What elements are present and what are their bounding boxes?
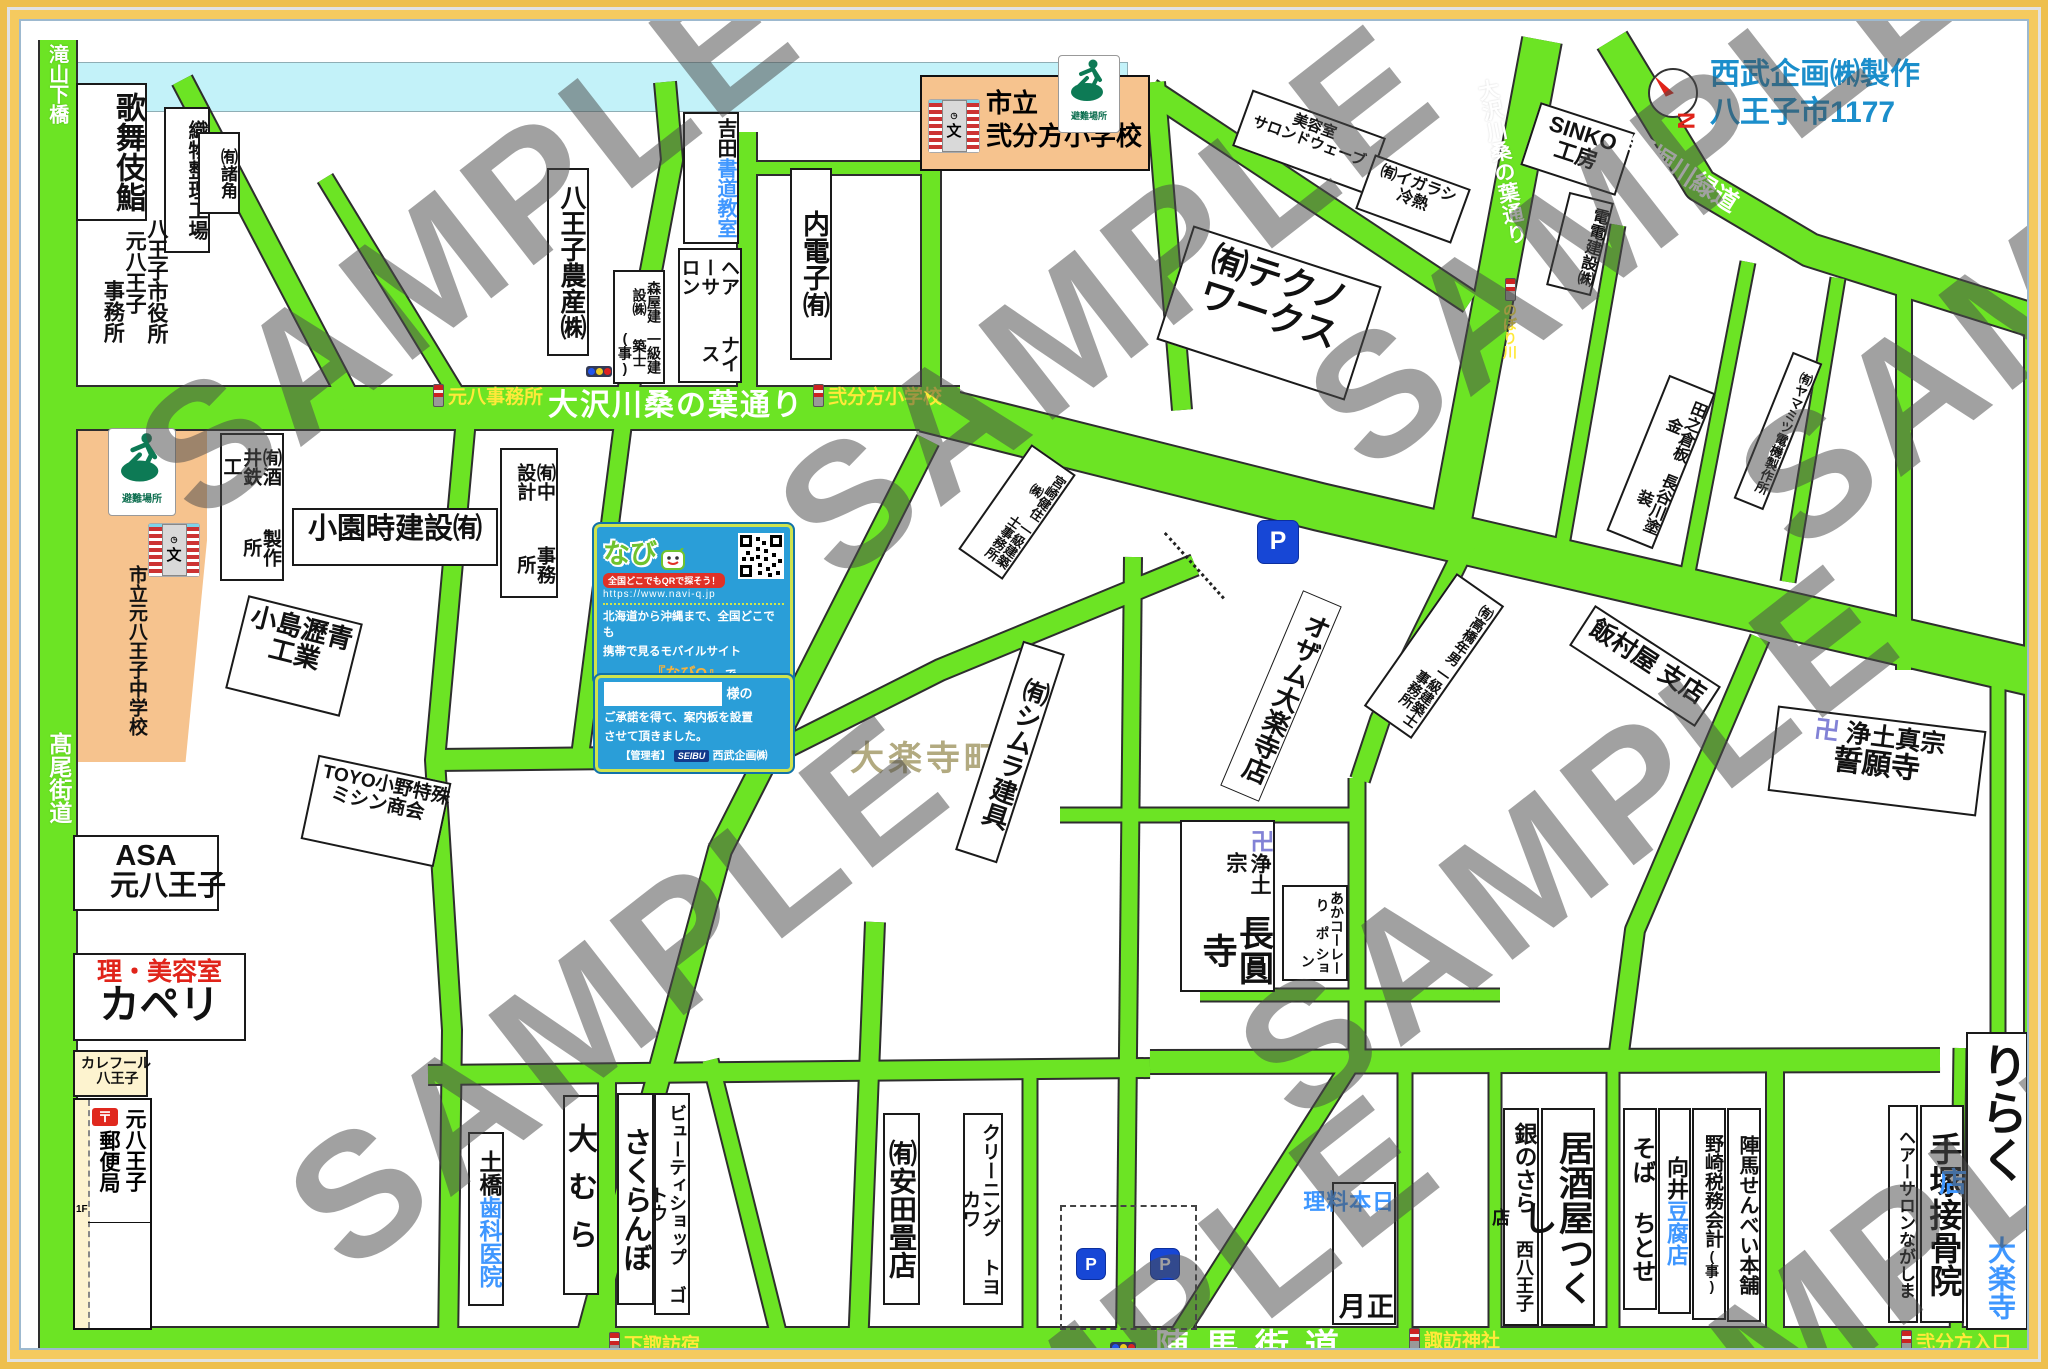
- post-icon: 〒: [92, 1108, 118, 1126]
- asa-motohachioji: ASA 元八王子: [73, 835, 219, 911]
- dobashi-dental: 土橋歯科医院: [468, 1132, 504, 1306]
- bus-nibukata-iriguchi: 弐分方入口: [1901, 1328, 2011, 1349]
- takao-kaido: 髙尾街道: [46, 732, 70, 824]
- map-credit: 西武企画㈱製作 八王子市1177: [1710, 56, 1920, 131]
- nibukata-elementary-box: ◷文 市立 弐分方小学校 避難場所: [920, 75, 1150, 171]
- map-canvas: ◷文 市立 弐分方小学校 避難場所 避難場所 ◷文 市立元八王子中学校 〒: [20, 20, 2028, 1349]
- jinba-senbei: 陣馬せんべい本舗: [1727, 1108, 1761, 1322]
- credit-line1: 西武企画㈱製作: [1710, 56, 1920, 94]
- evacuation-site-icon: 避難場所: [108, 428, 176, 516]
- morozumi: ㈲諸角: [198, 132, 240, 214]
- navi-mascot-icon: [661, 548, 685, 570]
- mukai-tofu: 向井豆腐店: [1658, 1108, 1691, 1314]
- jhs-name: 市立元八王子中学校: [112, 565, 146, 760]
- post-name-1: 元八王子: [119, 1108, 149, 1192]
- consent-line-2: させて頂きました。: [604, 728, 784, 744]
- bus-stop-icon: [1409, 1328, 1420, 1349]
- hair-salon-nice: ヘアーサロンナイス: [678, 248, 742, 383]
- bus-suwajinja: 諏訪神社: [1409, 1326, 1500, 1349]
- nozaki-zeimu: 野崎税務会計(事): [1692, 1108, 1726, 1320]
- ad-body-1: 北海道から沖縄まで、全国どこでも: [603, 608, 784, 640]
- moriya-kensetsu: 森屋建設㈱一級建築士(事): [613, 270, 665, 384]
- ad-url: https://www.navi-q.jp: [603, 589, 784, 605]
- riraku-dairakuji: りらく 大楽寺店: [1966, 1032, 2028, 1330]
- credit-line2: 八王子市1177: [1710, 94, 1920, 132]
- ad-body-2: 携帯で見るモバイルサイト: [603, 643, 784, 659]
- akari-corporation: あかりコーポレーション: [1282, 885, 1348, 981]
- caperi: 理・美容室カペリ: [73, 953, 246, 1041]
- tezuka-sekkotsu: 手塚接骨院: [1920, 1105, 1964, 1323]
- bus-stop-icon: [813, 384, 824, 407]
- bus-motohachi-jimusho: 元八事務所: [433, 382, 543, 409]
- bus-stop-icon: [433, 384, 444, 407]
- road-label-osawa-h: 大沢川桑の葉通り: [548, 390, 804, 421]
- omura: 大むら: [563, 1095, 599, 1295]
- parking-icon: P: [1076, 1248, 1106, 1280]
- evacuation-site-icon: 避難場所: [1058, 55, 1120, 133]
- beauty-shop-goto: ビューティショップ ゴトウ: [654, 1093, 690, 1315]
- navi-q-ad-board: なび 全国どこでもQRで探そう！ https://www.navi-q.jp 北…: [592, 522, 795, 686]
- post-name-2: 郵便局: [93, 1130, 123, 1193]
- yasuda-tatami: ㈲安田畳店: [883, 1113, 920, 1305]
- hachioji-nosan: 八王子農産㈱: [547, 168, 589, 356]
- sakai-tekko: ㈲酒井鉄工製作所: [220, 433, 284, 581]
- city-office: 八王子市役所元八王子事務所: [77, 218, 167, 370]
- kabukizushi: 歌舞伎鮨: [76, 83, 147, 221]
- ad-tagline: 全国どこでもQRで探そう！: [603, 573, 725, 588]
- traffic-signal-icon: [1110, 1342, 1136, 1349]
- parking-icon: P: [1150, 1248, 1180, 1280]
- soba-chitose: そば ちとせ: [1623, 1108, 1657, 1310]
- floor-label: 1F: [76, 1204, 88, 1215]
- bus-stop-icon: [1505, 278, 1516, 301]
- seibu-logo: SEIBU: [674, 750, 710, 762]
- qr-code: [738, 533, 784, 579]
- post-office: 〒 元八王子 郵便局 1F: [73, 1098, 152, 1330]
- hair-nagashima: ヘアーサロンながしま: [1888, 1105, 1918, 1323]
- cleaning-toyokawa: クリーニング トヨカワ: [963, 1113, 1003, 1305]
- school-icon: ◷文: [928, 99, 980, 153]
- tsukushi: 居酒屋つくし: [1541, 1108, 1595, 1326]
- shogatsu: 日本料理正月: [1332, 1182, 1396, 1325]
- kozonji-kensetsu: 小園時建設㈲: [292, 508, 498, 566]
- bus-noborikawa: のぼり川: [1500, 278, 1520, 359]
- naka-sekkei: ㈲中設計事務所: [500, 448, 558, 598]
- carrefour: カレフール 八王子: [73, 1050, 148, 1097]
- bus-stop-icon: [609, 1332, 620, 1349]
- navi-q-consent-board: 様の ご承諾を得て、案内板を設置 させて頂きました。 【管理者】 SEIBU 西…: [593, 673, 795, 774]
- blank-name-field: [604, 682, 722, 706]
- consent-line-1: ご承諾を得て、案内板を設置: [604, 709, 784, 725]
- bus-shimosuwajuku: 下諏訪宿: [609, 1330, 700, 1349]
- bridge-takigawa: 滝山下橋: [46, 44, 67, 124]
- yoshida-shodo: 吉田書道教室: [683, 112, 739, 244]
- school-icon: ◷文: [148, 523, 200, 577]
- compass-icon: N: [1646, 66, 1702, 137]
- uchi-denshi: 内電子㈲: [790, 168, 832, 360]
- choenji: 卍浄土宗長圓寺: [1180, 820, 1275, 992]
- bus-nibukata-shogakko: 弐分方小学校: [813, 382, 942, 409]
- map-document: ◷文 市立 弐分方小学校 避難場所 避難場所 ◷文 市立元八王子中学校 〒: [0, 0, 2048, 1369]
- parking-icon: P: [1257, 520, 1299, 564]
- svg-text:N: N: [1672, 112, 1699, 129]
- traffic-signal-icon: [586, 366, 612, 377]
- bus-stop-icon: [1901, 1330, 1912, 1349]
- navi-logo: なび: [603, 539, 657, 569]
- road-label-jinba: 陣馬街道: [1155, 1330, 1355, 1349]
